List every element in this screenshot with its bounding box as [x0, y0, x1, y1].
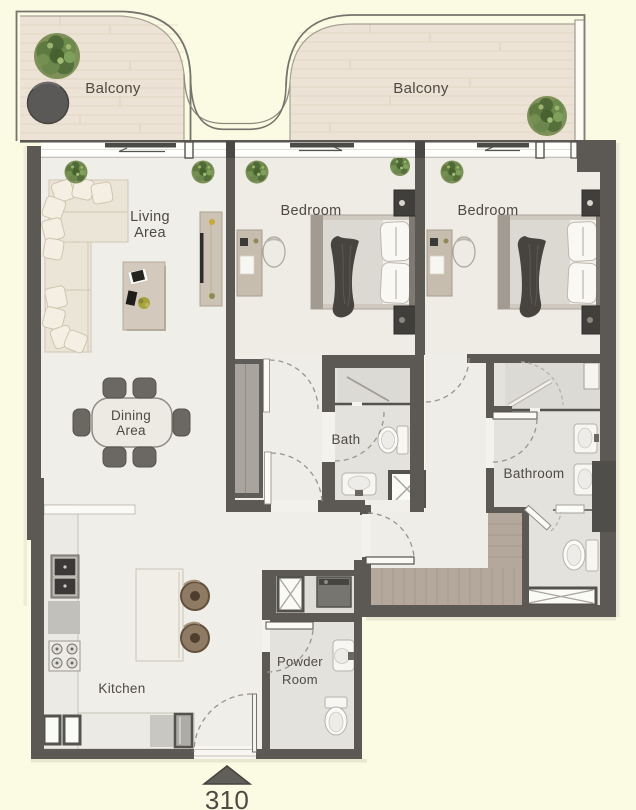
svg-text:Dining: Dining: [111, 408, 151, 423]
svg-text:Powder: Powder: [277, 654, 323, 669]
svg-text:Balcony: Balcony: [393, 80, 449, 97]
svg-text:Room: Room: [282, 672, 318, 687]
svg-text:Living: Living: [130, 209, 170, 225]
svg-text:310: 310: [205, 785, 249, 810]
svg-text:Bedroom: Bedroom: [281, 203, 342, 219]
svg-text:Area: Area: [116, 423, 146, 438]
svg-text:Bedroom: Bedroom: [458, 203, 519, 219]
svg-text:Balcony: Balcony: [85, 80, 141, 97]
svg-text:Kitchen: Kitchen: [98, 681, 145, 696]
svg-text:Area: Area: [134, 225, 166, 241]
svg-text:Bath: Bath: [332, 432, 361, 447]
svg-text:Bathroom: Bathroom: [504, 466, 565, 481]
